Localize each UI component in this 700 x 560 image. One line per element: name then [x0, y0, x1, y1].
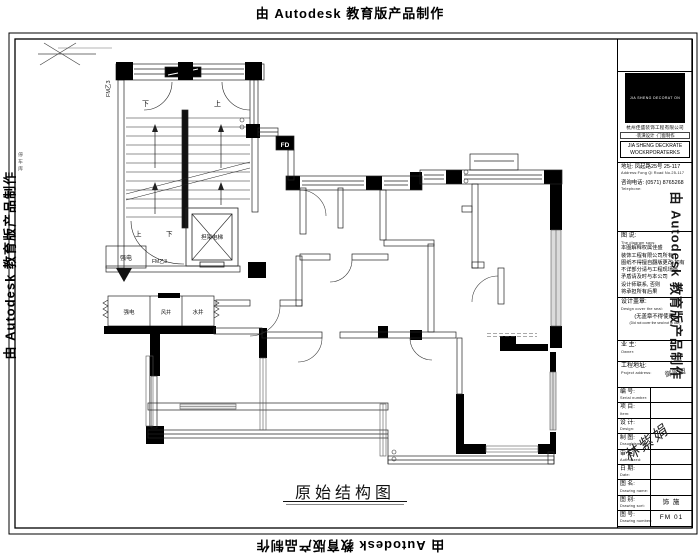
- stair-rail: [182, 110, 188, 228]
- floor-plan-canvas: FM乙3 下 上 上 下 FM乙3 担架电梯 强电 强电 风井 水井 FD: [0, 0, 700, 560]
- tb-row-date: 日 期:Date:: [618, 465, 692, 480]
- zigzag-mark-left: [103, 300, 108, 318]
- row-label: 日 期:: [620, 466, 648, 473]
- phone-cn: 咨询电话: (0571) 8765268: [621, 180, 689, 187]
- row-label: 图 名:: [620, 481, 648, 488]
- drawing-caption: 原始结构图: [255, 479, 435, 503]
- logo-caption: JIA SHENG DECORAT ON: [630, 96, 680, 100]
- windows: [146, 230, 561, 456]
- shaft-water-label: 水井: [192, 308, 204, 316]
- row-label-en: Serial number:: [620, 396, 648, 401]
- company-logo: JIA SHENG DECORAT ON: [625, 73, 685, 123]
- company-name-cn: 杭州佳盛装饰工程有限公司: [620, 125, 690, 131]
- watermark-right: 由 Autodesk 教育版产品制作: [668, 192, 687, 364]
- up-label-top: 上: [214, 99, 221, 108]
- row-label-en: Item:: [620, 412, 648, 417]
- row-value: [651, 450, 692, 464]
- address-en: Address:Fong Qi Road No.25-117: [621, 171, 689, 176]
- row-label: 图 号:: [620, 512, 648, 519]
- fire-door-label-bottom: FM乙3: [152, 258, 167, 265]
- shaft-electric-label: 强电: [123, 308, 135, 316]
- row-value: [651, 403, 692, 417]
- stair-door-arcs: [144, 82, 250, 110]
- row-label-en: Date:: [620, 473, 648, 478]
- concrete-columns: [104, 62, 562, 454]
- row-value: [651, 465, 692, 479]
- up-label-bottom: 上: [135, 229, 142, 238]
- fire-door-label-left: FM乙3: [105, 80, 112, 97]
- company-name-en: JIA SHENG DECKRATE WOCKRPORATERKS: [620, 141, 690, 158]
- tb-row-drawing-number: 图 号:Drawing number: FM 01: [618, 511, 692, 526]
- title-block-rows: 编 号:Serial number: 项 目:Item: 设 计:Design:…: [618, 388, 692, 527]
- tb-row-drawing-name: 图 名:Drawing name:: [618, 480, 692, 495]
- watermark-bottom: 由 Autodesk 教育版产品制作: [256, 537, 444, 556]
- company-name-en-line2: WOCKRPORATERKS: [621, 150, 689, 157]
- row-label-en: Drawing sort:: [620, 504, 648, 509]
- margin-note: 停车库: [17, 152, 24, 173]
- row-label-en: Design:: [620, 427, 648, 432]
- tb-row-drawing-sort: 图 别:Drawing sort: 饰 施: [618, 496, 692, 511]
- row-label: 编 号:: [620, 389, 648, 396]
- company-header: JIA SHENG DECORAT ON 杭州佳盛装饰工程有限公司 ·装潢设计 …: [618, 72, 692, 163]
- tb-row-serial: 编 号:Serial number:: [618, 388, 692, 403]
- row-value: FM 01: [651, 511, 692, 525]
- closet-door-mark: [116, 268, 132, 282]
- address-cn: 地址: 凤起路25号 25-117: [621, 164, 689, 171]
- down-label-top: 下: [142, 100, 149, 108]
- row-label: 项 目:: [620, 404, 648, 411]
- row-label: 图 别:: [620, 497, 648, 504]
- company-services: ·装潢设计 ·门窗制作: [620, 132, 690, 140]
- company-name-en-line1: JIA SHENG DECKRATE: [621, 143, 689, 150]
- row-label-en: Drawing name:: [620, 489, 648, 494]
- stairwell: [106, 64, 264, 272]
- zigzag-mark-right: [214, 300, 219, 318]
- door-arcs: [250, 190, 498, 362]
- row-value: [651, 388, 692, 402]
- fd-label: FD: [281, 142, 290, 149]
- drawing-sheet: 由 Autodesk 教育版产品制作 由 Autodesk 教育版产品制作 由 …: [0, 0, 700, 560]
- down-label-bottom: 下: [166, 230, 173, 238]
- corner-axis-mark-icon: [38, 43, 112, 65]
- row-label: 设 计:: [620, 420, 648, 427]
- elevator-label: 担架电梯: [201, 233, 224, 241]
- row-label-en: Drawing number:: [620, 519, 648, 524]
- electric-closet-label: 强电: [120, 254, 132, 262]
- row-value: [651, 480, 692, 494]
- tb-row-item: 项 目:Item:: [618, 403, 692, 418]
- shaft-air-label: 风井: [161, 309, 171, 316]
- watermark-left: 由 Autodesk 教育版产品制作: [0, 188, 19, 360]
- stair-bottom-arc: [131, 221, 184, 264]
- row-value: 饰 施: [651, 496, 692, 510]
- electric-closet: [106, 246, 146, 282]
- sheet-border: [9, 33, 697, 534]
- watermark-top: 由 Autodesk 教育版产品制作: [256, 3, 444, 22]
